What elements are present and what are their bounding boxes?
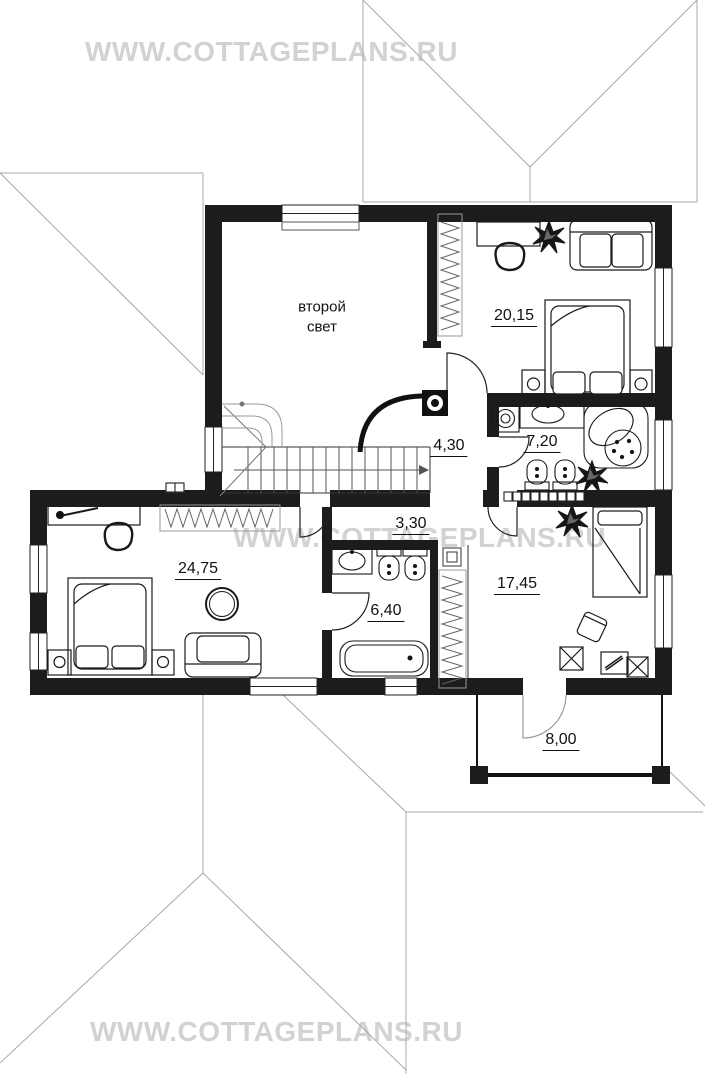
terrace-post xyxy=(470,766,488,784)
bed xyxy=(593,507,647,597)
window-left-upper xyxy=(205,427,222,472)
exterior-walls xyxy=(30,205,672,695)
window-sill xyxy=(282,222,359,230)
sofa xyxy=(570,220,652,270)
bathtub xyxy=(340,641,428,676)
sofa xyxy=(185,633,261,677)
plant-icon xyxy=(576,461,608,493)
nightstand xyxy=(152,650,174,675)
toilet xyxy=(525,460,549,490)
jacuzzi xyxy=(582,401,648,468)
plant-icon xyxy=(533,221,565,253)
room-area-hall: 4,30 xyxy=(430,437,467,457)
room-area-bathroom-bottom: 6,40 xyxy=(367,602,404,622)
sink xyxy=(332,548,372,574)
bed xyxy=(545,300,630,398)
window-left-lower-2 xyxy=(30,633,47,670)
furniture-bedroom-left xyxy=(48,483,280,677)
area-value: 24,75 xyxy=(175,560,221,580)
vent-box xyxy=(443,548,461,566)
vent-shaft xyxy=(422,390,448,416)
wardrobe-hangers xyxy=(160,505,280,531)
furniture-room-right xyxy=(556,505,648,677)
closet-strip xyxy=(439,545,468,688)
wardrobe-hangers xyxy=(438,214,462,336)
furniture-bedroom-top xyxy=(438,214,652,398)
door-room-right xyxy=(488,507,517,536)
room-area-bathroom-top: 7,20 xyxy=(523,433,560,453)
desk-with-laptop xyxy=(601,652,628,674)
room-area-corridor: 3,30 xyxy=(392,515,429,535)
window-bottom-2 xyxy=(385,678,417,695)
chair xyxy=(105,523,132,550)
round-table xyxy=(206,588,238,620)
wardrobe-hangers xyxy=(442,576,462,684)
terrace-post xyxy=(652,766,670,784)
floor-plan-drawing xyxy=(0,0,705,1074)
plant-icon xyxy=(556,505,588,537)
toilet xyxy=(377,548,401,580)
windows xyxy=(30,205,672,695)
door-terrace xyxy=(523,678,566,738)
area-value: 4,30 xyxy=(430,437,467,457)
area-value: 8,00 xyxy=(542,731,579,751)
area-value: 7,20 xyxy=(523,433,560,453)
window-right-bedroom xyxy=(655,268,672,347)
stair-direction-arrow xyxy=(234,465,429,475)
area-value: 3,30 xyxy=(392,515,429,535)
room-area-bedroom-top: 20,15 xyxy=(491,307,537,327)
window-bottom-1 xyxy=(250,678,317,695)
window-right-bath xyxy=(655,420,672,490)
door-bathroom-bottom xyxy=(332,593,369,630)
room-area-room-right: 17,45 xyxy=(494,575,540,595)
stool xyxy=(627,657,648,677)
room-label-second-light: второй свет xyxy=(298,298,346,337)
stair-break-line xyxy=(220,406,266,496)
door-bedroom-top xyxy=(447,353,487,407)
bed xyxy=(68,578,152,675)
window-top-wall xyxy=(282,205,359,222)
window-left-lower-1 xyxy=(30,545,47,593)
floor-plan-page: WWW.COTTAGEPLANS.RU WWW.COTTAGEPLANS.RU … xyxy=(0,0,705,1074)
toilet xyxy=(553,460,577,490)
towel-radiator xyxy=(504,492,584,501)
room-area-terrace: 8,00 xyxy=(542,731,579,751)
window-right-room xyxy=(655,575,672,648)
stool xyxy=(560,647,583,670)
toilet xyxy=(403,548,427,580)
radiator xyxy=(166,483,184,492)
area-value: 20,15 xyxy=(491,307,537,327)
staircase xyxy=(220,402,430,497)
fixtures-bathroom-top xyxy=(492,401,648,501)
chair xyxy=(576,611,608,643)
area-value: 6,40 xyxy=(367,602,404,622)
stair-guide-curves xyxy=(222,402,282,448)
room-area-bedroom-left: 24,75 xyxy=(175,560,221,580)
chair xyxy=(496,243,525,270)
area-value: 17,45 xyxy=(494,575,540,595)
